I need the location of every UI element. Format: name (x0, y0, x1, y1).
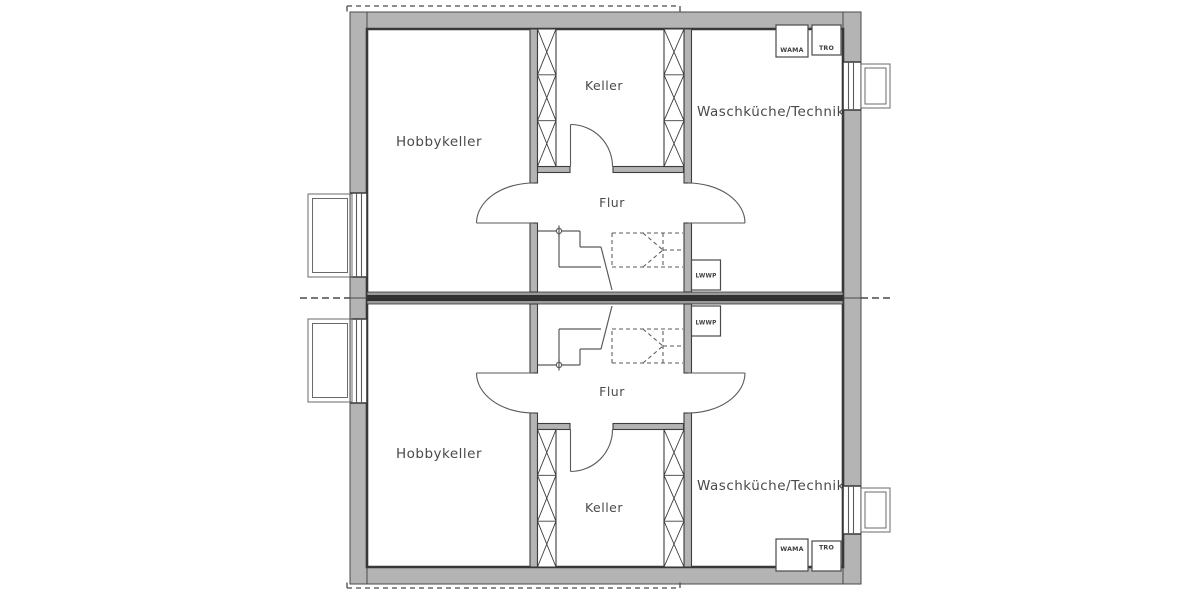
room-label-waschkueche-top: Waschküche/Technik (697, 104, 845, 120)
room-label-waschkueche-bottom: Waschküche/Technik (697, 478, 845, 494)
room-label-hobbykeller-top: Hobbykeller (396, 134, 482, 150)
appliance-label-tro-top: TRO (819, 45, 835, 52)
appliance-label-lwwp-bottom: LWWP (695, 321, 717, 327)
room-label-hobbykeller-bottom: Hobbykeller (396, 446, 482, 462)
room-label-keller-top: Keller (585, 78, 623, 93)
room-label-flur-top: Flur (599, 195, 625, 210)
unit-top-plan (308, 12, 890, 298)
appliance-label-wama-top: WAMA (780, 47, 803, 54)
overhang-dashed-top (347, 6, 680, 12)
appliance-label-lwwp-top: LWWP (695, 274, 717, 280)
room-label-keller-bottom: Keller (585, 500, 623, 515)
unit-bottom-plan (308, 298, 890, 584)
floor-plan-drawing: Hobbykeller Keller Waschküche/Technik Fl… (0, 0, 1200, 600)
appliance-label-tro-bottom: TRO (819, 545, 835, 552)
appliance-label-wama-bottom: WAMA (780, 546, 803, 553)
room-label-flur-bottom: Flur (599, 384, 625, 399)
